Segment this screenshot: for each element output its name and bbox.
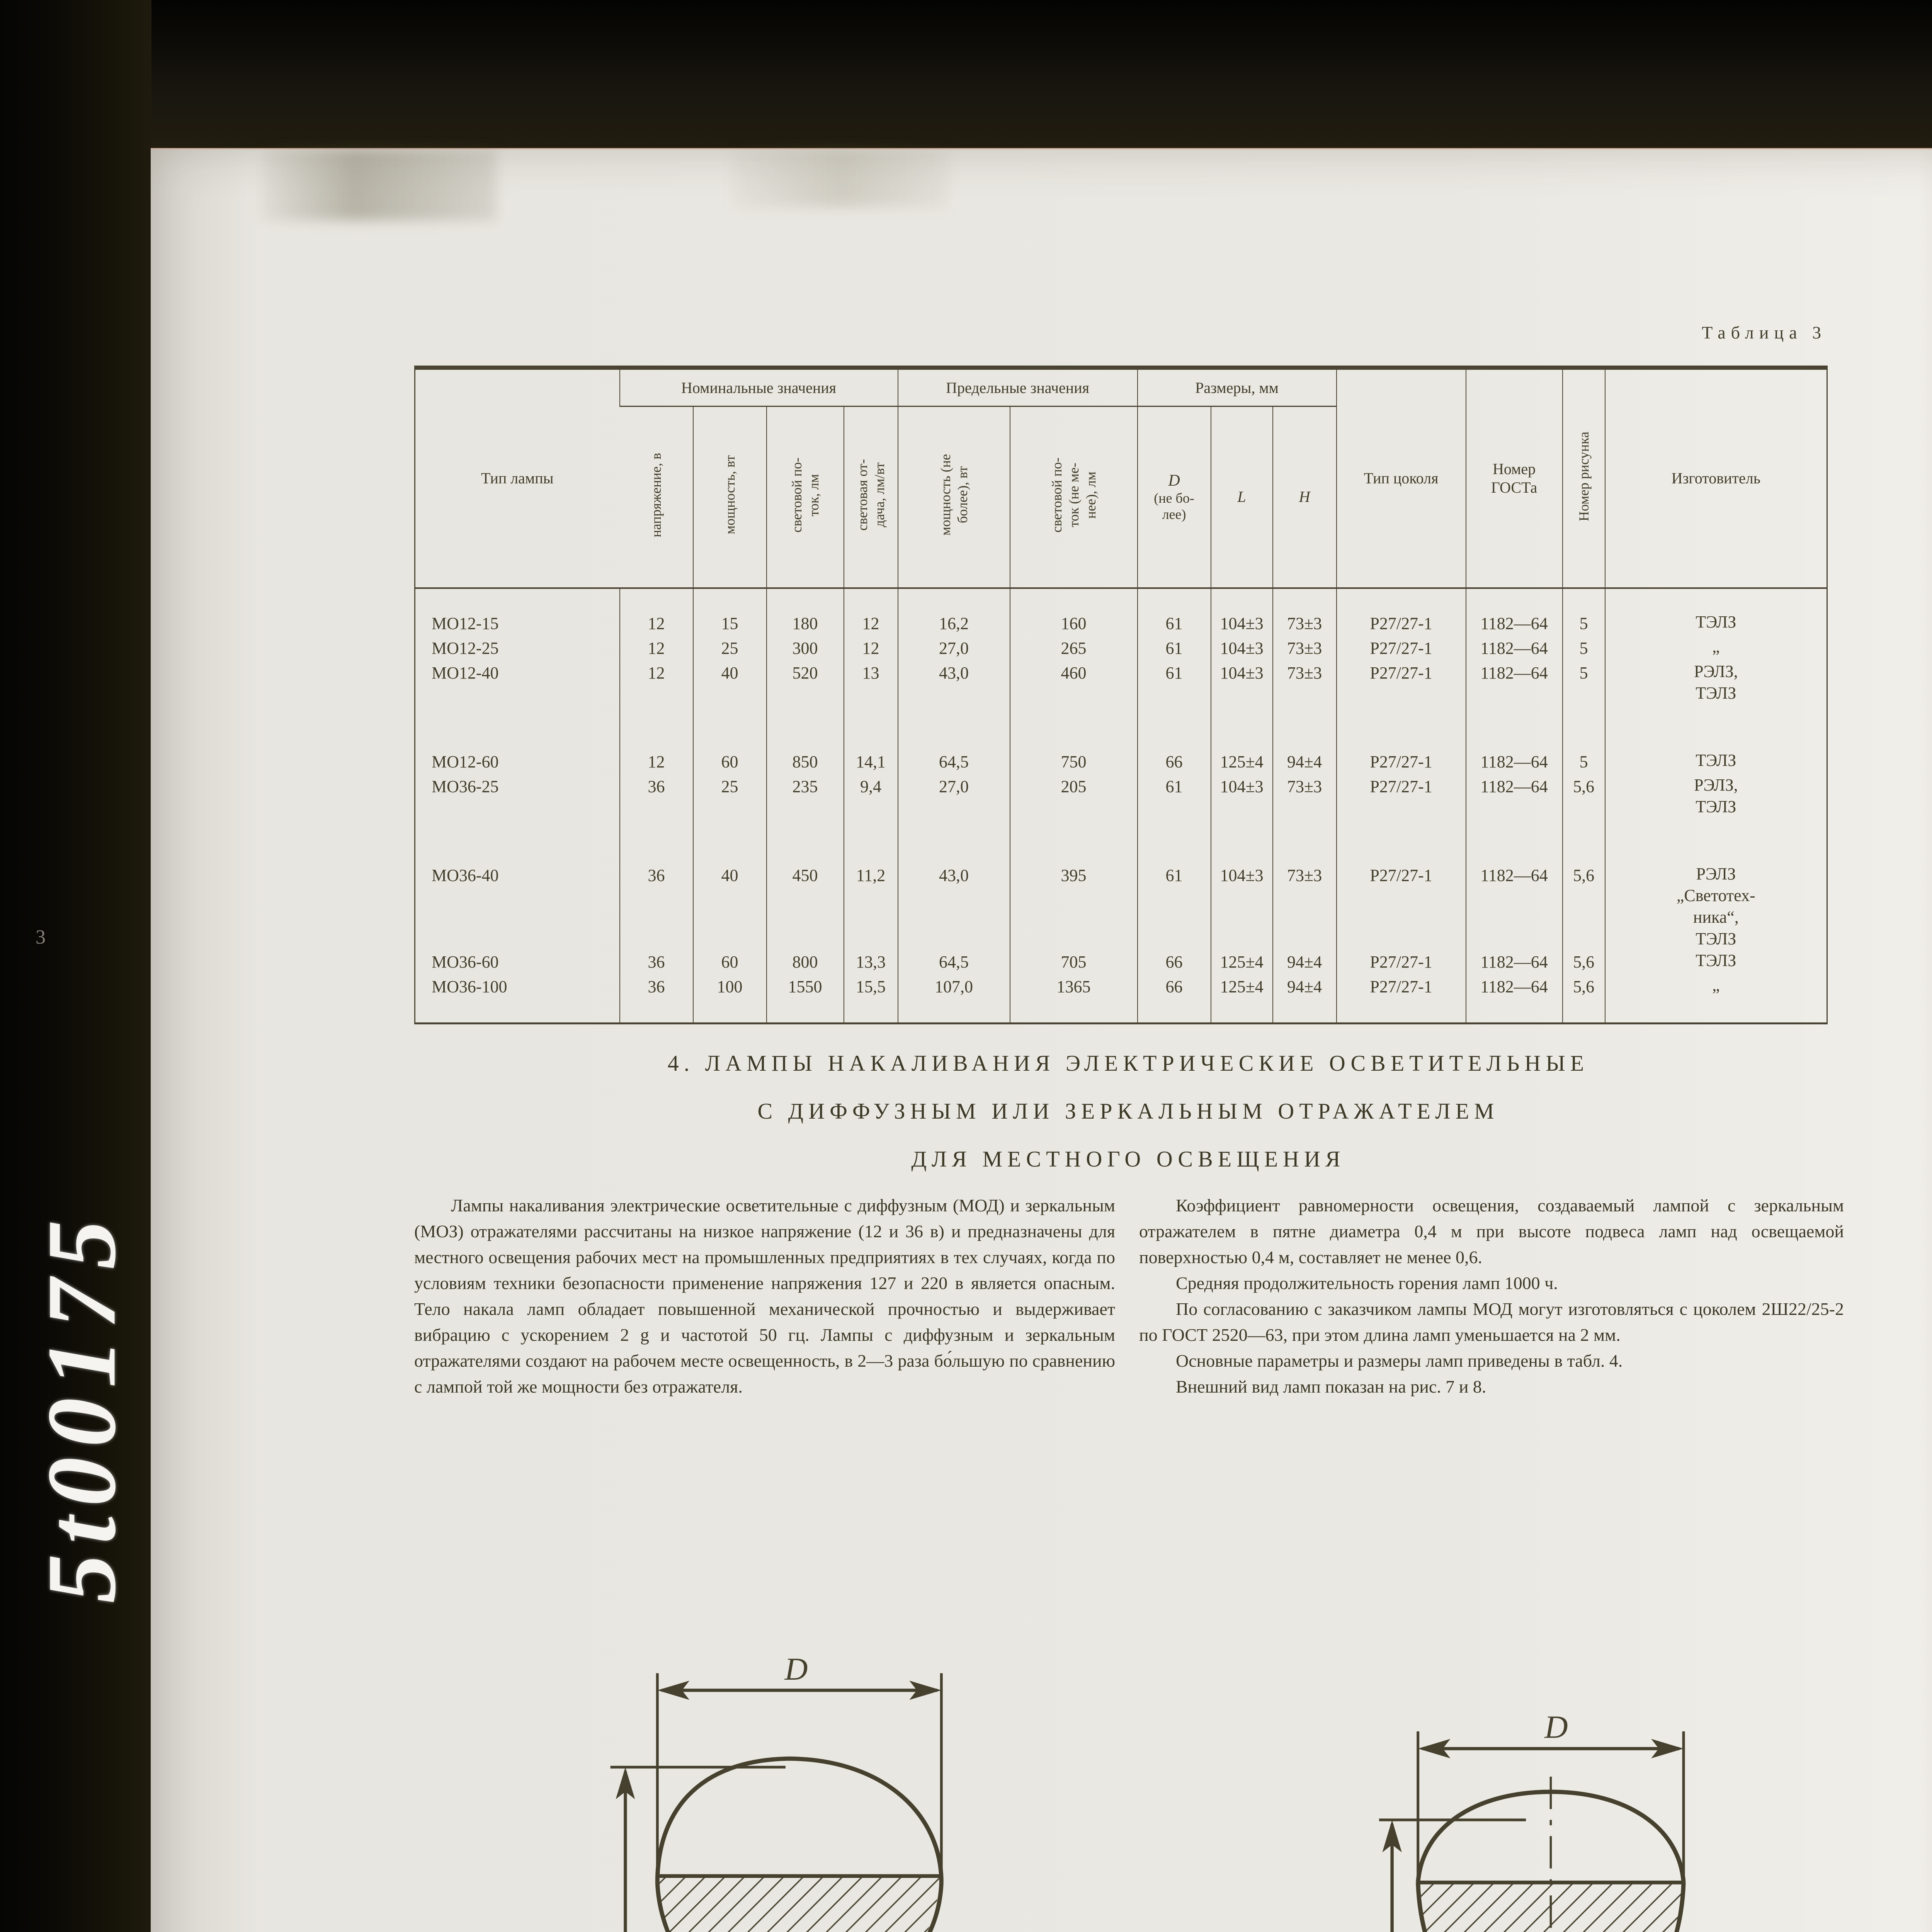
- table-cell: Р27/27-1: [1337, 588, 1466, 636]
- table-cell: 40: [693, 818, 767, 950]
- film-border-top: [0, 0, 1932, 149]
- header-group-limit: Предельные значения: [898, 368, 1138, 406]
- header-lamp-type: Тип лампы: [415, 368, 620, 588]
- table-cell: 61: [1138, 661, 1211, 704]
- paragraph: Средняя продолжительность горения ламп 1…: [1139, 1270, 1844, 1296]
- table-cell: 25: [693, 774, 767, 818]
- table-cell: РЭЛЗ „Светотех- ника“, ТЭЛЗ: [1605, 818, 1827, 950]
- table-cell: 40: [693, 661, 767, 704]
- table-cell: 750: [1010, 704, 1138, 774]
- table-cell: 73±3: [1273, 774, 1337, 818]
- table-cell: 12: [620, 704, 693, 774]
- table-cell: 12: [844, 636, 898, 661]
- table-cell: ТЭЛЗ: [1605, 950, 1827, 975]
- table-cell: 5: [1563, 661, 1605, 704]
- table-cell: 12: [620, 636, 693, 661]
- table-cell: 125±4: [1211, 950, 1273, 975]
- header-group-size: Размеры, мм: [1138, 368, 1337, 406]
- scanned-microfilm-page: Таблица 3 Тип лампы Номинальные значения…: [0, 0, 1932, 1932]
- header-length: L: [1211, 406, 1273, 588]
- section-heading: 4. ЛАМПЫ НАКАЛИВАНИЯ ЭЛЕКТРИЧЕСКИЕ ОСВЕТ…: [406, 1050, 1851, 1194]
- table-row: МО36-10036100155015,5107,0136566125±494±…: [415, 975, 1827, 1024]
- table-cell: Р27/27-1: [1337, 950, 1466, 975]
- table-cell: 73±3: [1273, 588, 1337, 636]
- header-voltage: напряжение, в: [620, 406, 693, 588]
- table-cell: 36: [620, 774, 693, 818]
- table-cell: 11,2: [844, 818, 898, 950]
- table-cell: 850: [767, 704, 844, 774]
- table-cell: 104±3: [1211, 636, 1273, 661]
- table-cell: 104±3: [1211, 774, 1273, 818]
- table-cell: 43,0: [898, 818, 1010, 950]
- dim-label-d: D: [1544, 1714, 1568, 1745]
- table-cell: 180: [767, 588, 844, 636]
- table-cell: 450: [767, 818, 844, 950]
- table-row: МО36-40364045011,243,039561104±373±3Р27/…: [415, 818, 1827, 950]
- table-cell: 800: [767, 950, 844, 975]
- table-cell: ТЭЛЗ: [1605, 588, 1827, 636]
- table-row: МО12-4012405201343,046061104±373±3Р27/27…: [415, 661, 1827, 704]
- page-top-stain: [261, 149, 497, 221]
- table-cell: 73±3: [1273, 661, 1337, 704]
- table-cell: 1182—64: [1466, 588, 1563, 636]
- table-cell: „: [1605, 975, 1827, 1024]
- table-cell: МО12-15: [415, 588, 620, 636]
- table-cell: 43,0: [898, 661, 1010, 704]
- table-cell: 5,6: [1563, 818, 1605, 950]
- figure-7: D L: [591, 1656, 997, 1932]
- table-cell: МО36-60: [415, 950, 620, 975]
- header-diameter: D (не бо- лее): [1138, 406, 1211, 588]
- table-cell: МО12-25: [415, 636, 620, 661]
- table-cell: Р27/27-1: [1337, 661, 1466, 704]
- table-cell: 36: [620, 950, 693, 975]
- header-power: мощность, вт: [693, 406, 767, 588]
- table-cell: 100: [693, 975, 767, 1024]
- table-cell: 1182—64: [1466, 975, 1563, 1024]
- table-cell: 1182—64: [1466, 774, 1563, 818]
- table-cell: 104±3: [1211, 661, 1273, 704]
- table-cell: 125±4: [1211, 975, 1273, 1024]
- table-cell: 25: [693, 636, 767, 661]
- table-cell: 1182—64: [1466, 950, 1563, 975]
- table-cell: МО12-60: [415, 704, 620, 774]
- table-cell: „: [1605, 636, 1827, 661]
- table-cell: 5: [1563, 588, 1605, 636]
- header-height: H: [1273, 406, 1337, 588]
- header-efficacy: световая от- дача, лм/вт: [844, 406, 898, 588]
- table-cell: 5,6: [1563, 975, 1605, 1024]
- table-cell: 107,0: [898, 975, 1010, 1024]
- section-heading-line: С ДИФФУЗНЫМ ИЛИ ЗЕРКАЛЬНЫМ ОТРАЖАТЕЛЕМ: [406, 1098, 1851, 1124]
- table-cell: 73±3: [1273, 818, 1337, 950]
- table-cell: 520: [767, 661, 844, 704]
- table-cell: 104±3: [1211, 588, 1273, 636]
- table-cell: 300: [767, 636, 844, 661]
- section-heading-line: ДЛЯ МЕСТНОГО ОСВЕЩЕНИЯ: [406, 1146, 1851, 1172]
- lamp-parameters-table: Тип лампы Номинальные значения Предельны…: [414, 366, 1828, 1024]
- table-cell: 1182—64: [1466, 636, 1563, 661]
- table-caption: Таблица 3: [414, 322, 1827, 343]
- table-cell: Р27/27-1: [1337, 636, 1466, 661]
- figure-8: D L: [1364, 1714, 1731, 1932]
- table-cell: 61: [1138, 588, 1211, 636]
- paragraph: Основные параметры и размеры ламп привед…: [1139, 1348, 1844, 1374]
- film-border-left: [0, 0, 151, 1932]
- table-cell: 16,2: [898, 588, 1010, 636]
- table-cell: РЭЛЗ, ТЭЛЗ: [1605, 774, 1827, 818]
- table-cell: РЭЛЗ, ТЭЛЗ: [1605, 661, 1827, 704]
- body-column-left: Лампы накаливания электрические осветите…: [414, 1192, 1115, 1400]
- table-cell: 205: [1010, 774, 1138, 818]
- header-base-type: Тип цоколя: [1337, 368, 1466, 588]
- page-top-stain: [732, 149, 949, 207]
- table-cell: 12: [620, 661, 693, 704]
- table-cell: ТЭЛЗ: [1605, 704, 1827, 774]
- table-cell: 160: [1010, 588, 1138, 636]
- table-header-groups: Тип лампы Номинальные значения Предельны…: [415, 368, 1827, 406]
- table-cell: 27,0: [898, 636, 1010, 661]
- table-cell: 64,5: [898, 704, 1010, 774]
- table-cell: 66: [1138, 975, 1211, 1024]
- table-cell: 5,6: [1563, 774, 1605, 818]
- dim-label-d: D: [784, 1656, 808, 1687]
- paragraph: По согласованию с заказчиком лампы МОД м…: [1139, 1296, 1844, 1348]
- table-cell: 1182—64: [1466, 661, 1563, 704]
- table-cell: 5: [1563, 704, 1605, 774]
- header-figure-number: Номер рисунка: [1563, 368, 1605, 588]
- table-cell: 1182—64: [1466, 818, 1563, 950]
- paragraph: Внешний вид ламп показан на рис. 7 и 8.: [1139, 1374, 1844, 1400]
- film-edge-mark: 3: [36, 926, 46, 949]
- table-cell: 14,1: [844, 704, 898, 774]
- table-cell: МО36-100: [415, 975, 620, 1024]
- table-cell: 61: [1138, 774, 1211, 818]
- table-cell: Р27/27-1: [1337, 774, 1466, 818]
- table-row: МО12-1512151801216,216061104±373±3Р27/27…: [415, 588, 1827, 636]
- table-cell: 1182—64: [1466, 704, 1563, 774]
- header-group-nominal: Номинальные значения: [620, 368, 898, 406]
- table-cell: 13,3: [844, 950, 898, 975]
- table-cell: 12: [844, 588, 898, 636]
- table-cell: 104±3: [1211, 818, 1273, 950]
- table-cell: 64,5: [898, 950, 1010, 975]
- document-page: Таблица 3 Тип лампы Номинальные значения…: [151, 148, 1932, 1932]
- table-cell: 60: [693, 950, 767, 975]
- lamp-table-body: МО12-1512151801216,216061104±373±3Р27/27…: [415, 588, 1827, 1024]
- table-cell: 36: [620, 975, 693, 1024]
- table-cell: 15: [693, 588, 767, 636]
- table-cell: 5: [1563, 636, 1605, 661]
- section-heading-line: 4. ЛАМПЫ НАКАЛИВАНИЯ ЭЛЕКТРИЧЕСКИЕ ОСВЕТ…: [406, 1050, 1851, 1076]
- table-row: МО36-2536252359,427,020561104±373±3Р27/2…: [415, 774, 1827, 818]
- table-cell: Р27/27-1: [1337, 975, 1466, 1024]
- table-cell: 5,6: [1563, 950, 1605, 975]
- table-cell: 66: [1138, 704, 1211, 774]
- table-cell: 15,5: [844, 975, 898, 1024]
- table-row: МО36-60366080013,364,570566125±494±4Р27/…: [415, 950, 1827, 975]
- table-row: МО12-60126085014,164,575066125±494±4Р27/…: [415, 704, 1827, 774]
- table-cell: МО36-40: [415, 818, 620, 950]
- table-cell: 73±3: [1273, 636, 1337, 661]
- paragraph: Коэффициент равномерности освещения, соз…: [1139, 1192, 1844, 1270]
- table-cell: 27,0: [898, 774, 1010, 818]
- header-manufacturer: Изготовитель: [1605, 368, 1827, 588]
- table-cell: 66: [1138, 950, 1211, 975]
- table-cell: 1550: [767, 975, 844, 1024]
- paragraph: Лампы накаливания электрические осветите…: [414, 1192, 1115, 1400]
- table-row: МО12-2512253001227,026561104±373±3Р27/27…: [415, 636, 1827, 661]
- header-flux-min: световой по- ток (не ме- нее), лм: [1010, 406, 1138, 588]
- table-cell: МО12-40: [415, 661, 620, 704]
- table-cell: 94±4: [1273, 950, 1337, 975]
- table-cell: 235: [767, 774, 844, 818]
- table-cell: 12: [620, 588, 693, 636]
- table-cell: 705: [1010, 950, 1138, 975]
- table-cell: 125±4: [1211, 704, 1273, 774]
- header-figure-number-label: Номер рисунка: [1575, 432, 1592, 521]
- header-flux: световой по- ток, лм: [767, 406, 844, 588]
- table-cell: 61: [1138, 818, 1211, 950]
- header-power-max: мощность (не более), вт: [898, 406, 1010, 588]
- table-cell: 13: [844, 661, 898, 704]
- table-cell: 60: [693, 704, 767, 774]
- table-cell: МО36-25: [415, 774, 620, 818]
- table-cell: 9,4: [844, 774, 898, 818]
- table-cell: 36: [620, 818, 693, 950]
- table-cell: 265: [1010, 636, 1138, 661]
- table-cell: 1365: [1010, 975, 1138, 1024]
- table-cell: 94±4: [1273, 975, 1337, 1024]
- table-cell: Р27/27-1: [1337, 818, 1466, 950]
- film-handwritten-code: 5t00175: [26, 1210, 139, 1603]
- table-cell: 61: [1138, 636, 1211, 661]
- table-cell: 460: [1010, 661, 1138, 704]
- figure-8-lamp-drawing: D L: [1364, 1714, 1731, 1932]
- body-column-right: Коэффициент равномерности освещения, соз…: [1139, 1192, 1844, 1400]
- figure-7-lamp-drawing: D L: [591, 1656, 997, 1932]
- table-cell: 94±4: [1273, 704, 1337, 774]
- table-cell: 395: [1010, 818, 1138, 950]
- table-cell: Р27/27-1: [1337, 704, 1466, 774]
- header-gost-number: Номер ГОСТа: [1466, 368, 1563, 588]
